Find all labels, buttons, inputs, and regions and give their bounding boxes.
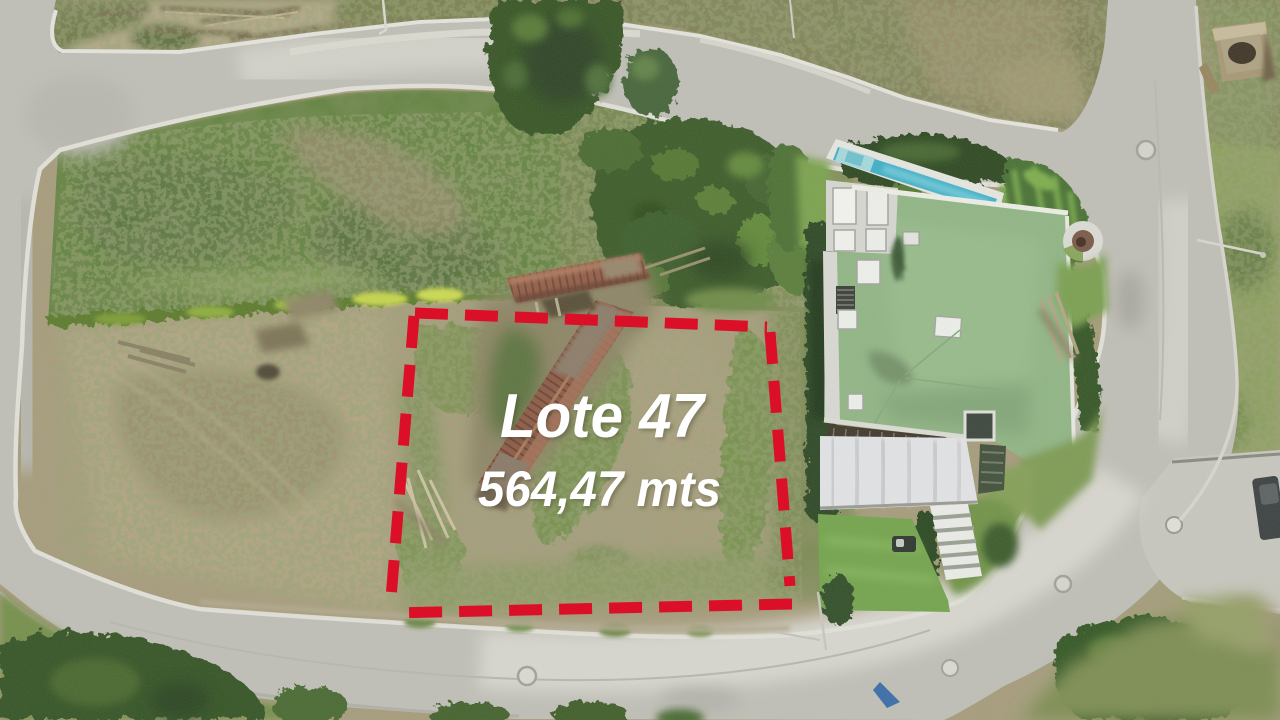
svg-text:564,47 mts: 564,47 mts (478, 461, 721, 517)
svg-text:Lote 47: Lote 47 (500, 382, 706, 451)
